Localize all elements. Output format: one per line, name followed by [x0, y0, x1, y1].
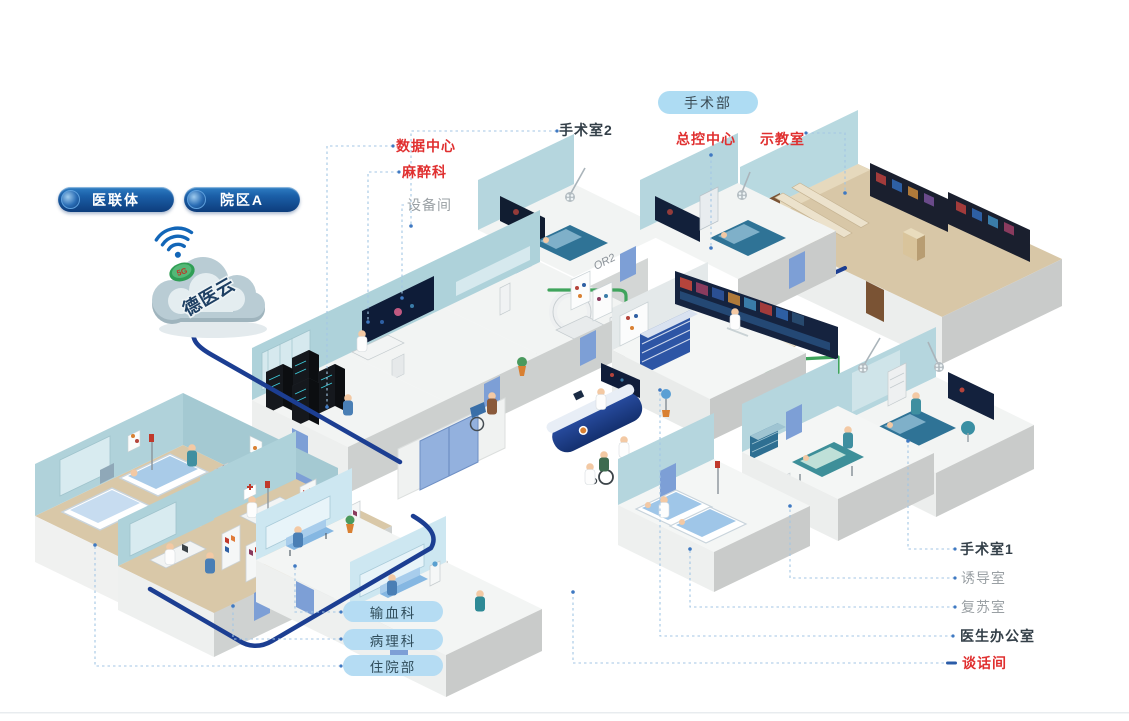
label-talk-room: 谈话间 — [962, 655, 1007, 671]
pill-surgery-department[interactable]: 手术部 — [658, 91, 758, 114]
pill-campus-a-label: 院区A — [220, 190, 264, 210]
inpatient-label: 住院部 — [370, 656, 417, 676]
pill-campus-a[interactable]: 院区A — [184, 187, 300, 212]
standing-visitor — [487, 392, 497, 414]
waiting-patient — [387, 574, 397, 595]
label-anesthesiology: 麻醉科 — [402, 164, 447, 180]
label-operating-room-1: 手术室1 — [960, 541, 1014, 557]
pill-pathology[interactable]: 病理科 — [343, 629, 443, 650]
nurse-walking — [585, 463, 595, 484]
hospital-network-diagram: OR3 OR2 — [0, 0, 1129, 721]
technician — [205, 552, 215, 573]
label-doctor-office: 医生办公室 — [960, 628, 1035, 644]
isometric-hospital-scene: OR3 OR2 — [0, 0, 1129, 721]
surgery-department-label: 手术部 — [684, 93, 732, 113]
talk-room-dash — [946, 662, 957, 665]
nurse — [843, 426, 853, 448]
label-recovery-room: 复苏室 — [961, 599, 1006, 615]
medical-cloud: 5G 德医云 — [152, 257, 267, 338]
surgeon — [911, 392, 921, 414]
label-operating-room-2: 手术室2 — [559, 122, 613, 138]
pill-knob-icon — [61, 190, 80, 209]
doctor — [619, 436, 629, 457]
reception-monitor — [573, 390, 584, 400]
reception-desk — [545, 383, 647, 457]
label-data-center: 数据中心 — [396, 138, 456, 154]
pathology-label: 病理科 — [370, 630, 417, 650]
standing-woman — [475, 590, 485, 611]
stool — [961, 421, 975, 435]
label-equipment-room: 设备间 — [407, 197, 452, 213]
waiting-patient — [293, 526, 303, 547]
label-master-control: 总控中心 — [676, 131, 736, 147]
wifi-icon — [155, 225, 196, 261]
page-bottom-divider — [0, 712, 1129, 714]
pill-blood-transfusion[interactable]: 输血科 — [343, 601, 443, 622]
label-induction-room: 诱导室 — [961, 570, 1006, 586]
blood-transfusion-label: 输血科 — [370, 602, 417, 622]
pill-medical-alliance[interactable]: 医联体 — [58, 187, 174, 212]
ward-nurse — [187, 444, 197, 466]
pill-medical-alliance-label: 医联体 — [92, 190, 140, 210]
pill-knob-icon — [187, 190, 206, 209]
pill-inpatient[interactable]: 住院部 — [343, 655, 443, 676]
label-demo-classroom: 示教室 — [760, 131, 805, 147]
